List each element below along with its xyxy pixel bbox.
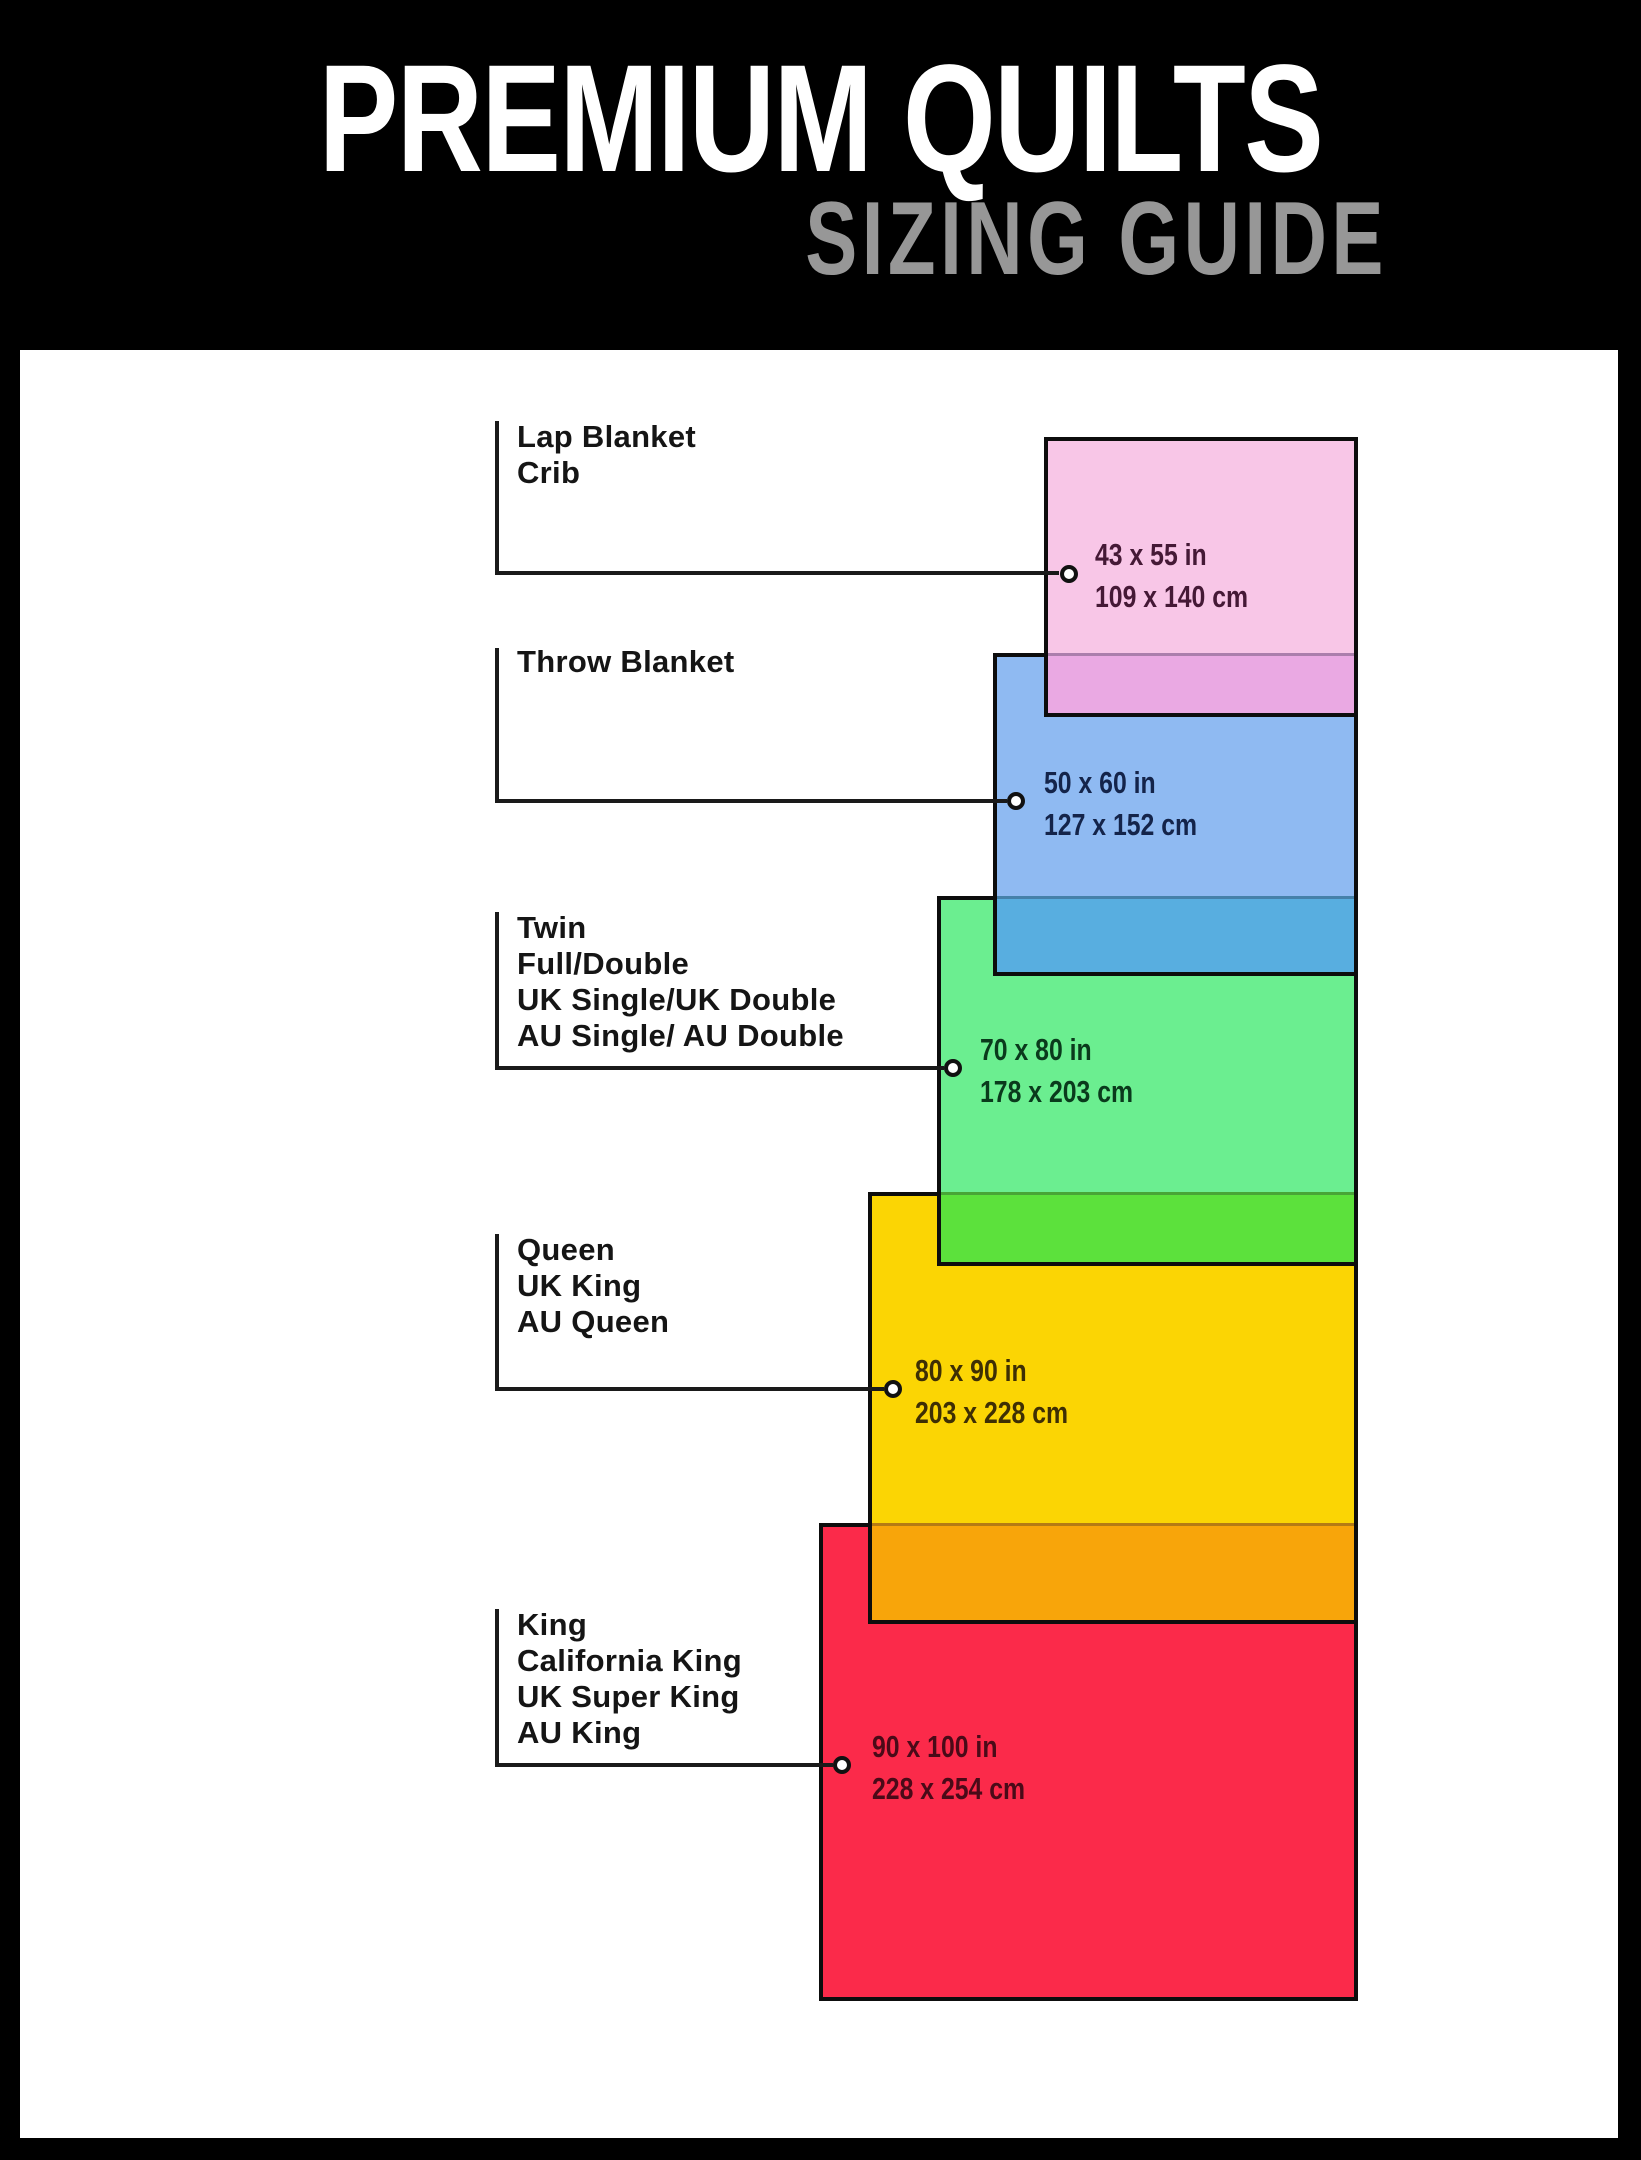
queen-leader-vline bbox=[495, 1234, 499, 1389]
dimension-inches: 80 x 90 in bbox=[915, 1350, 1068, 1392]
throw-blanket-leader-vline bbox=[495, 648, 499, 801]
page-title: PREMIUM QUILTS bbox=[181, 42, 1461, 195]
king-dimensions: 90 x 100 in 228 x 254 cm bbox=[872, 1726, 1025, 1810]
queen-king-overlap-band bbox=[872, 1523, 1354, 1620]
dimension-inches: 43 x 55 in bbox=[1095, 534, 1248, 576]
lap-blanket-anchor-dot bbox=[1060, 565, 1078, 583]
dimension-inches: 70 x 80 in bbox=[980, 1029, 1133, 1071]
lap-blanket-leader-hline bbox=[495, 571, 1059, 575]
page-subtitle: SIZING GUIDE bbox=[805, 187, 1388, 291]
label-line: Full/Double bbox=[517, 946, 844, 982]
frame-left-border bbox=[0, 350, 20, 2138]
dimension-inches: 90 x 100 in bbox=[872, 1726, 1025, 1768]
header-band: PREMIUM QUILTS SIZING GUIDE bbox=[0, 0, 1641, 350]
twin-leader-vline bbox=[495, 912, 499, 1068]
dimension-inches: 50 x 60 in bbox=[1044, 762, 1197, 804]
queen-uk-king-label: Queen UK King AU Queen bbox=[517, 1232, 669, 1340]
label-line: UK King bbox=[517, 1268, 669, 1304]
label-line: Queen bbox=[517, 1232, 669, 1268]
throw-blanket-leader-hline bbox=[495, 799, 1007, 803]
label-line: Lap Blanket bbox=[517, 419, 696, 455]
dimension-cm: 203 x 228 cm bbox=[915, 1392, 1068, 1434]
dimension-cm: 127 x 152 cm bbox=[1044, 804, 1197, 846]
label-line: UK Super King bbox=[517, 1679, 742, 1715]
king-california-king-label: King California King UK Super King AU Ki… bbox=[517, 1607, 742, 1751]
lap-blanket-crib-label: Lap Blanket Crib bbox=[517, 419, 696, 491]
queen-anchor-dot bbox=[884, 1380, 902, 1398]
queen-dimensions: 80 x 90 in 203 x 228 cm bbox=[915, 1350, 1068, 1434]
king-anchor-dot bbox=[833, 1756, 851, 1774]
twin-full-double-label: Twin Full/Double UK Single/UK Double AU … bbox=[517, 910, 844, 1054]
crib-throw-overlap-band bbox=[1048, 653, 1354, 713]
throw-blanket-label: Throw Blanket bbox=[517, 644, 734, 680]
king-leader-hline bbox=[495, 1763, 833, 1767]
label-line: California King bbox=[517, 1643, 742, 1679]
lap-blanket-leader-vline bbox=[495, 421, 499, 574]
dimension-cm: 228 x 254 cm bbox=[872, 1768, 1025, 1810]
frame-bottom-border bbox=[0, 2138, 1641, 2160]
sizing-guide-infographic: PREMIUM QUILTS SIZING GUIDE Lap Blanket … bbox=[0, 0, 1641, 2160]
label-line: AU King bbox=[517, 1715, 742, 1751]
label-line: Crib bbox=[517, 455, 696, 491]
twin-anchor-dot bbox=[944, 1059, 962, 1077]
queen-leader-hline bbox=[495, 1387, 884, 1391]
lap-blanket-dimensions: 43 x 55 in 109 x 140 cm bbox=[1095, 534, 1248, 618]
label-line: AU Queen bbox=[517, 1304, 669, 1340]
twin-dimensions: 70 x 80 in 178 x 203 cm bbox=[980, 1029, 1133, 1113]
dimension-cm: 109 x 140 cm bbox=[1095, 576, 1248, 618]
label-line: Throw Blanket bbox=[517, 644, 734, 680]
label-line: Twin bbox=[517, 910, 844, 946]
twin-leader-hline bbox=[495, 1066, 944, 1070]
label-line: AU Single/ AU Double bbox=[517, 1018, 844, 1054]
throw-blanket-dimensions: 50 x 60 in 127 x 152 cm bbox=[1044, 762, 1197, 846]
twin-queen-overlap-band bbox=[941, 1192, 1354, 1262]
dimension-cm: 178 x 203 cm bbox=[980, 1071, 1133, 1113]
label-line: King bbox=[517, 1607, 742, 1643]
throw-twin-overlap-band bbox=[997, 896, 1354, 972]
frame-right-border bbox=[1618, 350, 1641, 2138]
label-line: UK Single/UK Double bbox=[517, 982, 844, 1018]
throw-blanket-anchor-dot bbox=[1007, 792, 1025, 810]
king-leader-vline bbox=[495, 1609, 499, 1765]
